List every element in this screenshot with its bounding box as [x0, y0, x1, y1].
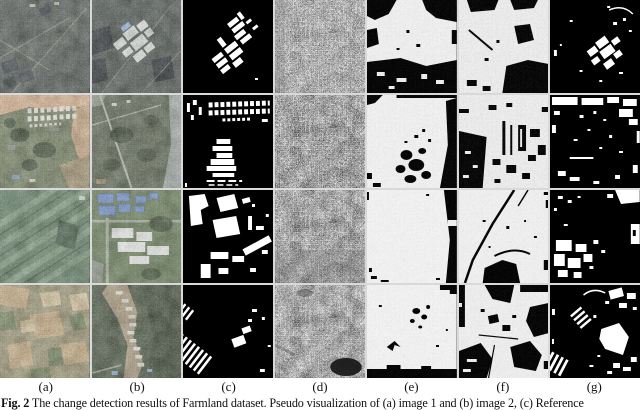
pseudo-image-1 [0, 0, 90, 93]
column-label-b: (b) [91, 379, 182, 396]
result-map-f [459, 0, 549, 93]
figure-cell-r3-b [92, 190, 182, 283]
pseudo-image-2 [92, 0, 182, 93]
result-map-g [550, 190, 640, 283]
column-label-a: (a) [0, 379, 91, 396]
figure-cell-r2-f [459, 95, 549, 188]
figure-cell-r3-f [459, 190, 549, 283]
figure-cell-r2-d [275, 95, 365, 188]
figure-cell-r1-f [459, 0, 549, 93]
figure-cell-r4-d [275, 285, 365, 378]
figure-cell-r1-g [550, 0, 640, 93]
difference-image [275, 95, 365, 188]
figure-cell-r1-a [0, 0, 90, 93]
figure-cell-r1-d [275, 0, 365, 93]
figure-cell-r3-d [275, 190, 365, 283]
figure-caption: Fig. 2 The change detection results of F… [0, 396, 640, 410]
column-label-g: (g) [549, 379, 640, 396]
image-grid [0, 0, 640, 378]
result-map-f [459, 95, 549, 188]
result-map-f [459, 190, 549, 283]
difference-image [275, 190, 365, 283]
figure-cell-r4-f [459, 285, 549, 378]
column-label-e: (e) [366, 379, 457, 396]
difference-image [275, 285, 365, 378]
figure-cell-r4-a [0, 285, 90, 378]
pseudo-image-2 [92, 285, 182, 378]
figure-cell-r1-e [367, 0, 457, 93]
pseudo-image-2 [92, 190, 182, 283]
column-label-d: (d) [274, 379, 365, 396]
pseudo-image-1 [0, 190, 90, 283]
difference-image [275, 0, 365, 93]
column-labels: (a) (b) (c) (d) (e) (f) (g) [0, 379, 640, 396]
result-map-g [550, 285, 640, 378]
figure-cell-r4-g [550, 285, 640, 378]
figure-cell-r2-c [183, 95, 273, 188]
reference-change-map [183, 190, 273, 283]
reference-change-map [183, 95, 273, 188]
figure-cell-r3-a [0, 190, 90, 283]
result-map-e [367, 0, 457, 93]
column-label-c: (c) [183, 379, 274, 396]
figure-cell-r4-b [92, 285, 182, 378]
column-label-f: (f) [457, 379, 548, 396]
pseudo-image-1 [0, 285, 90, 378]
reference-change-map [183, 285, 273, 378]
figure-cell-r1-c [183, 0, 273, 93]
figure-caption-label: Fig. 2 [1, 396, 29, 410]
figure-cell-r4-e [367, 285, 457, 378]
reference-change-map [183, 0, 273, 93]
result-map-e [367, 285, 457, 378]
pseudo-image-1 [0, 95, 90, 188]
figure-cell-r1-b [92, 0, 182, 93]
figure-cell-r4-c [183, 285, 273, 378]
result-map-f [459, 285, 549, 378]
figure-caption-text: The change detection results of Farmland… [29, 396, 584, 410]
result-map-e [367, 190, 457, 283]
pseudo-image-2 [92, 95, 182, 188]
paper-figure: (a) (b) (c) (d) (e) (f) (g) Fig. 2 The c… [0, 0, 640, 410]
result-map-g [550, 0, 640, 93]
figure-cell-r2-g [550, 95, 640, 188]
result-map-g [550, 95, 640, 188]
figure-cell-r3-g [550, 190, 640, 283]
result-map-e [367, 95, 457, 188]
figure-cell-r3-c [183, 190, 273, 283]
figure-cell-r2-e [367, 95, 457, 188]
figure-cell-r2-b [92, 95, 182, 188]
figure-cell-r3-e [367, 190, 457, 283]
figure-cell-r2-a [0, 95, 90, 188]
